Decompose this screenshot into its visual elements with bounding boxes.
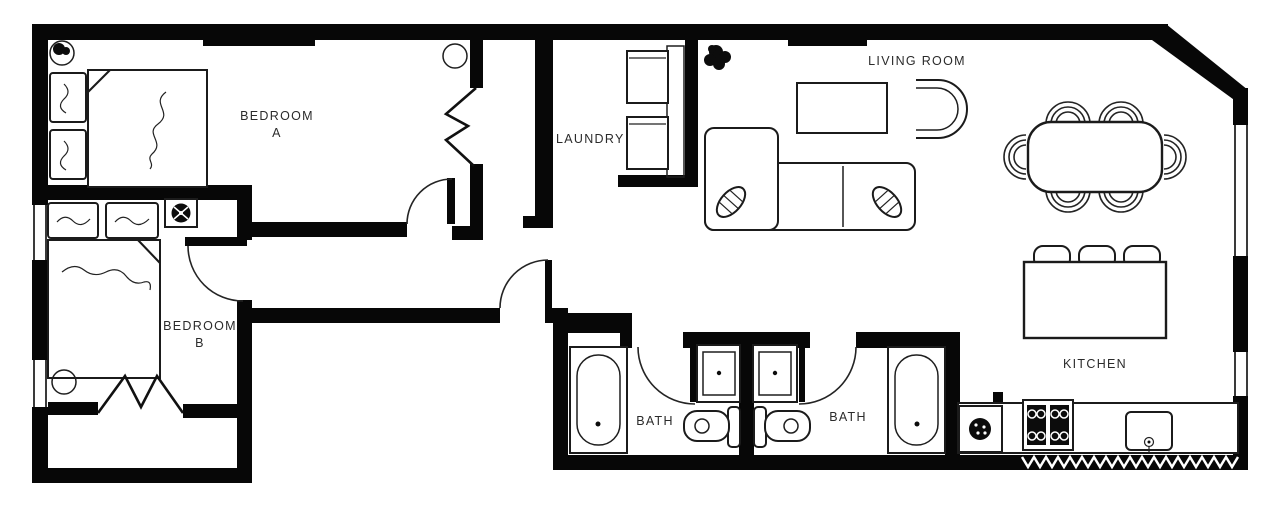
window-right-upper [1234, 125, 1248, 256]
dining-chair [1099, 102, 1143, 124]
left-wall-upper [32, 24, 48, 205]
bedroom-b-closet-wall-right [183, 404, 237, 418]
sofa-chaise [705, 128, 778, 230]
cooktop-range [1023, 400, 1073, 450]
coffee-table [797, 83, 887, 133]
bedroom-a: BEDROOM A [50, 41, 314, 187]
bathtub [888, 347, 945, 453]
laundry-west-wall-foot [523, 216, 553, 228]
bed-a [88, 70, 207, 187]
kitchen-sink [1126, 412, 1172, 453]
window-left-upper [33, 205, 47, 260]
bath2-label: BATH [829, 410, 867, 424]
pillow [106, 203, 158, 238]
left-wall-lower [32, 407, 48, 470]
bedroom-a-label: BEDROOM [240, 109, 314, 123]
hall-south-wall [237, 308, 500, 323]
kitchen: KITCHEN [958, 246, 1238, 467]
laundry-cabinet [667, 46, 684, 177]
bedroom-b-door [185, 237, 247, 301]
living-room-label: LIVING ROOM [868, 54, 966, 68]
living-room: LIVING ROOM [704, 45, 967, 230]
laundry-south-wall [618, 175, 698, 187]
washer [627, 51, 668, 103]
pillow [50, 73, 86, 122]
bedroom-b: BEDROOM B [48, 199, 237, 413]
dining-chair [1046, 102, 1090, 124]
dining-chair [1099, 190, 1143, 212]
dining-chair [1004, 135, 1026, 179]
accent-chair [916, 80, 967, 138]
top-wall-window-band-left [203, 24, 315, 46]
closet-wall-upper [470, 24, 483, 88]
closet-wall-lower [470, 164, 483, 230]
bath2-tub-head-wall [856, 332, 960, 348]
laundry: LAUNDRY [556, 46, 684, 177]
baths-party-wall [739, 332, 754, 457]
window-right-lower [1234, 352, 1248, 396]
dining-area [1004, 102, 1186, 212]
bedroom-b-closet-wall-left [48, 402, 98, 415]
kitchen-island [1024, 262, 1166, 338]
ceiling-light-icon [443, 44, 467, 68]
top-wall [32, 24, 1168, 40]
bifold-closet-door [446, 88, 476, 166]
pillow [50, 130, 86, 179]
potted-plant-icon [704, 45, 731, 70]
bath2-door [799, 347, 856, 404]
dining-table [1028, 122, 1162, 192]
laundry-label: LAUNDRY [556, 132, 625, 146]
bathroom-1: BATH [570, 345, 740, 453]
bottom-wall-left-block [32, 468, 252, 483]
bedroom-b-label-line2: B [195, 336, 205, 350]
vanity-sink [697, 345, 740, 402]
bedroom-b-east-wall-upper [237, 185, 252, 240]
left-wall-middle [32, 260, 48, 360]
sectional-sofa [705, 128, 915, 230]
bifold-closet-door [98, 376, 183, 413]
hall-north-wall [252, 222, 407, 237]
hall-exit-door [500, 260, 552, 308]
laundry-west-wall [535, 24, 553, 216]
bath1-label: BATH [636, 414, 674, 428]
right-wall-middle [1233, 256, 1248, 352]
dining-chair [1164, 135, 1186, 179]
window-left-lower [33, 360, 47, 407]
right-wall-upper [1233, 88, 1248, 125]
floor-plan: BEDROOM A LAUNDRY [0, 0, 1280, 506]
bathtub [570, 347, 627, 453]
vanity-sink [753, 345, 797, 402]
ceiling-light-icon [50, 41, 74, 65]
bath1-door [638, 347, 696, 404]
bedroom-a-label-line2: A [272, 126, 282, 140]
dining-chair [1046, 190, 1090, 212]
top-wall-window-band-right [788, 36, 867, 46]
bath1-wall-connector [620, 313, 632, 348]
garbage-disposal [959, 406, 1002, 452]
dryer [627, 117, 668, 169]
toilet [754, 407, 810, 447]
kitchen-label: KITCHEN [1063, 357, 1127, 371]
pillow [48, 203, 98, 238]
bedroom-b-label: BEDROOM [163, 319, 237, 333]
bedroom-a-door [407, 178, 455, 224]
toilet [684, 407, 740, 447]
laundry-east-wall [685, 24, 698, 187]
bathroom-2: BATH [753, 345, 945, 453]
bed-b [48, 240, 160, 378]
wall-fan-icon [165, 199, 197, 227]
bottom-wall-right-block [553, 455, 1248, 470]
bedroom-b-east-wall-lower [237, 300, 252, 483]
